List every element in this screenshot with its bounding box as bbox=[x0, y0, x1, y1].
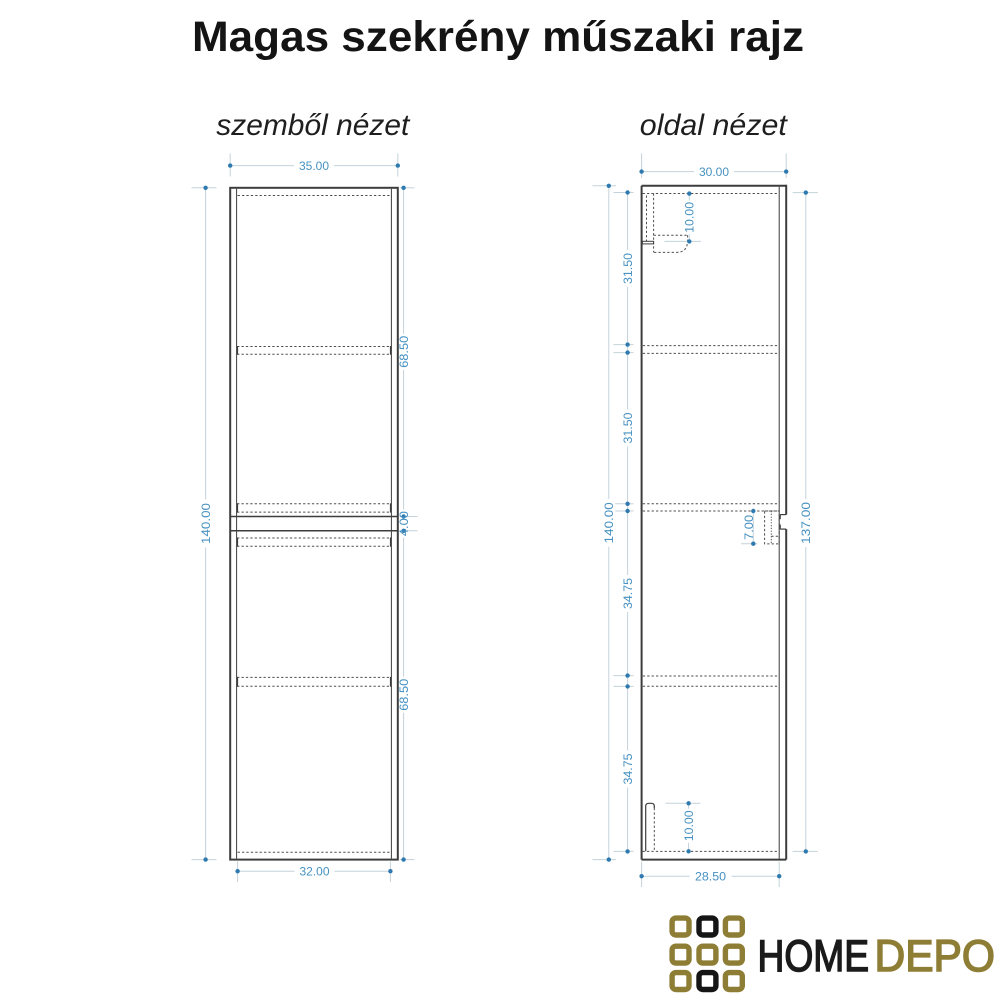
svg-text:szemből nézet: szemből nézet bbox=[216, 109, 411, 142]
svg-text:Magas szekrény műszaki rajz: Magas szekrény műszaki rajz bbox=[192, 13, 804, 61]
svg-text:31.50: 31.50 bbox=[621, 253, 635, 284]
svg-text:HOME: HOME bbox=[758, 932, 870, 981]
svg-text:68.50: 68.50 bbox=[397, 335, 411, 367]
svg-text:oldal nézet: oldal nézet bbox=[640, 109, 789, 142]
svg-text:35.00: 35.00 bbox=[299, 159, 329, 173]
svg-text:10.00: 10.00 bbox=[683, 202, 697, 233]
svg-text:31.50: 31.50 bbox=[621, 412, 635, 443]
svg-text:137.00: 137.00 bbox=[799, 502, 813, 544]
svg-text:30.00: 30.00 bbox=[699, 165, 729, 179]
svg-text:68.50: 68.50 bbox=[397, 678, 411, 710]
svg-text:DEPO: DEPO bbox=[875, 932, 996, 981]
svg-text:34.75: 34.75 bbox=[621, 753, 635, 784]
svg-text:10.00: 10.00 bbox=[682, 810, 696, 841]
svg-text:7.00: 7.00 bbox=[742, 515, 756, 540]
svg-text:28.50: 28.50 bbox=[695, 869, 726, 883]
svg-text:34.75: 34.75 bbox=[621, 578, 635, 609]
svg-text:32.00: 32.00 bbox=[300, 864, 330, 878]
svg-text:140.00: 140.00 bbox=[199, 503, 213, 544]
svg-text:4.00: 4.00 bbox=[397, 511, 411, 536]
svg-text:140.00: 140.00 bbox=[602, 502, 616, 543]
